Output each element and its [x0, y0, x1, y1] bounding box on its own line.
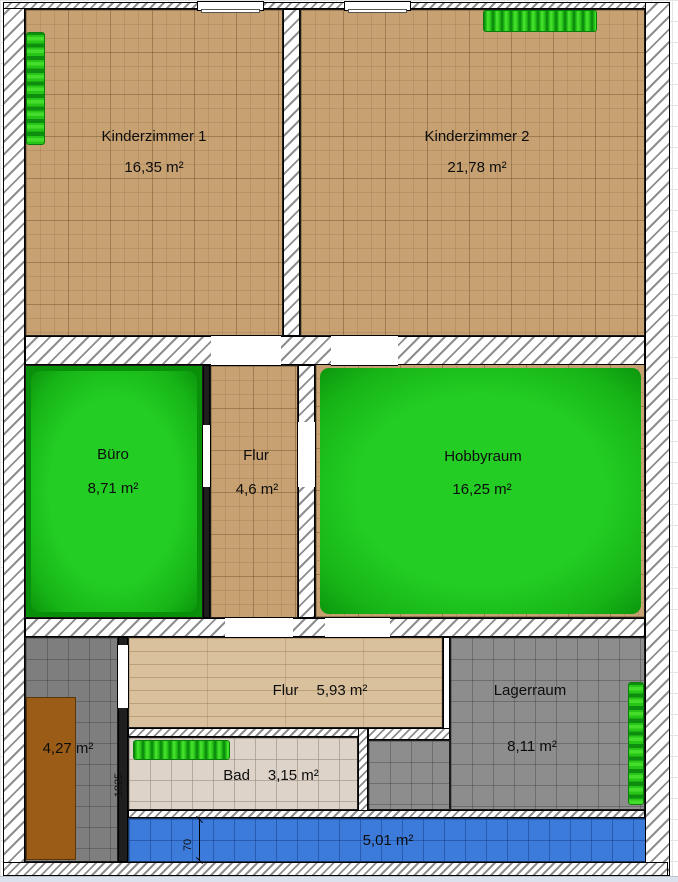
label-kinderzimmer-2-name: Kinderzimmer 2 — [377, 128, 577, 145]
window-bottom-strip — [0, 876, 678, 882]
room-lagerraum-floor-upper[interactable] — [450, 637, 645, 810]
wall-kinderzimmer-divider[interactable] — [283, 9, 300, 336]
door-abstellraum-flur[interactable] — [117, 645, 129, 708]
label-buero-name: Büro — [33, 446, 193, 463]
wall-outer-top[interactable] — [3, 2, 668, 9]
dimension-bad-left-wall: 1825 — [113, 768, 127, 802]
dimension-line-balkon — [199, 819, 200, 861]
wall-outer-right[interactable] — [645, 2, 670, 876]
label-flur-mid-area: 4,6 m² — [207, 481, 307, 498]
label-kinderzimmer-1-area: 16,35 m² — [54, 159, 254, 176]
label-flur-low-area: 5,93 m² — [316, 682, 367, 699]
label-buero-area: 8,71 m² — [33, 480, 193, 497]
label-hobbyraum-area: 16,25 m² — [382, 481, 582, 498]
label-flur-mid-name: Flur — [206, 447, 306, 464]
window-sill — [348, 9, 407, 13]
label-bad-name: Bad — [223, 767, 250, 784]
label-kinderzimmer-2-area: 21,78 m² — [377, 159, 577, 176]
floor-plan-canvas: Kinderzimmer 1 16,35 m² Kinderzimmer 2 2… — [0, 0, 678, 882]
radiator-bad[interactable] — [133, 740, 230, 760]
label-bad-area: 3,15 m² — [268, 767, 319, 784]
door-hobbyraum-flur-low[interactable] — [325, 617, 390, 638]
window-kinderzimmer-1[interactable] — [197, 1, 264, 11]
wall-bad-balkon[interactable] — [128, 810, 645, 818]
door-kinderzimmer-1-flur[interactable] — [211, 335, 281, 366]
label-kinderzimmer-1-name: Kinderzimmer 1 — [54, 128, 254, 145]
label-flur-low: Flur 5,93 m² — [220, 682, 420, 699]
label-lagerraum-area: 8,11 m² — [432, 738, 632, 755]
label-balkon-area: 5,01 m² — [288, 832, 488, 849]
window-kinderzimmer-2[interactable] — [344, 1, 411, 11]
door-flur-mid-flur-low[interactable] — [225, 617, 293, 638]
label-abstellraum-area: 4,27 m² — [8, 740, 128, 757]
label-flur-low-name: Flur — [273, 682, 299, 699]
dimension-balkon-height: 70 — [182, 832, 196, 858]
radiator-kinderzimmer-2[interactable] — [483, 10, 597, 32]
radiator-kinderzimmer-1[interactable] — [26, 32, 45, 145]
wall-outer-bottom[interactable] — [3, 862, 668, 876]
label-lagerraum-name: Lagerraum — [430, 682, 630, 699]
wall-flur-bad[interactable] — [128, 728, 365, 737]
cabinet-abstellraum[interactable] — [26, 697, 76, 860]
door-kinderzimmer-2-hobbyraum[interactable] — [331, 335, 398, 366]
window-sill — [201, 9, 260, 13]
label-bad: Bad 3,15 m² — [171, 767, 371, 784]
label-hobbyraum-name: Hobbyraum — [383, 448, 583, 465]
